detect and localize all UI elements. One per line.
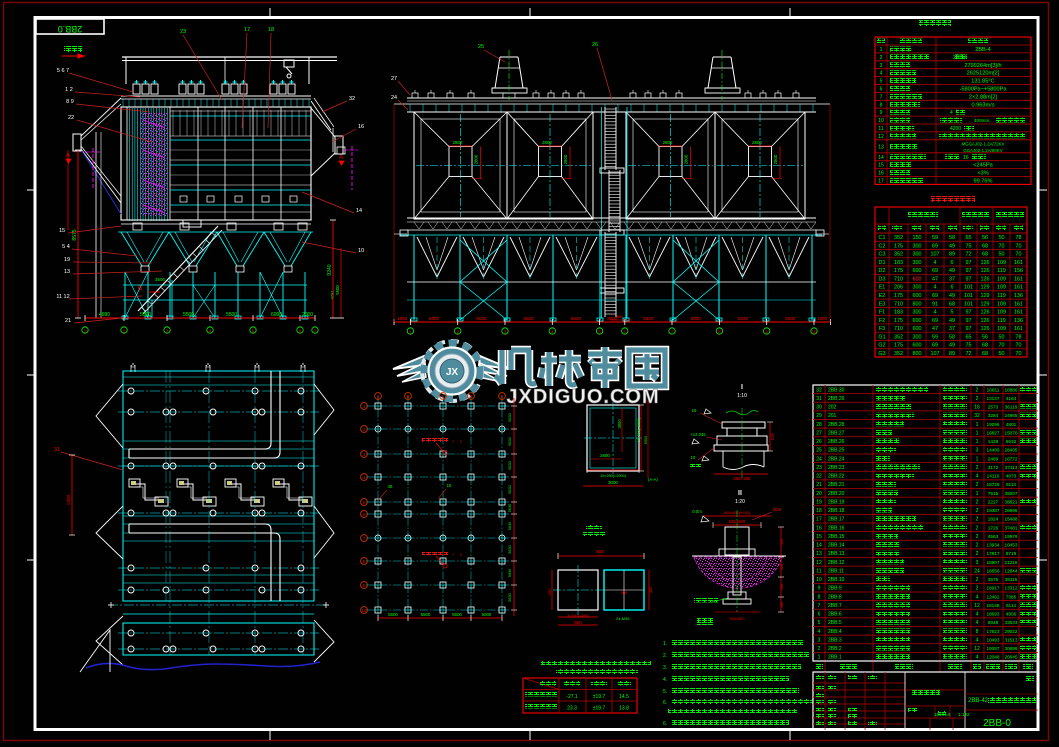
svg-text:6948: 6948 <box>988 620 999 625</box>
svg-text:255×255: 255×255 <box>733 476 751 481</box>
svg-text:2625120m[2]: 2625120m[2] <box>967 71 1000 77</box>
svg-text:400: 400 <box>621 590 628 595</box>
svg-text:70: 70 <box>999 343 1005 349</box>
svg-text:2800: 2800 <box>600 453 610 458</box>
svg-text:4: 4 <box>976 594 979 600</box>
svg-text:10: 10 <box>362 608 367 613</box>
svg-text:D2: D2 <box>879 268 886 274</box>
svg-text:550×550: 550×550 <box>730 617 745 621</box>
svg-text:4: 4 <box>880 71 883 77</box>
svg-text:4: 4 <box>976 474 979 480</box>
svg-text:8: 8 <box>880 102 883 108</box>
svg-text:2BB.13: 2BB.13 <box>828 551 845 557</box>
svg-text:12: 12 <box>974 646 980 652</box>
svg-text:3172: 3172 <box>988 465 999 470</box>
svg-text:1:10: 1:10 <box>737 393 747 399</box>
svg-text:32: 32 <box>974 413 980 419</box>
svg-text:1 2: 1 2 <box>65 87 73 93</box>
svg-text:17623: 17623 <box>986 629 999 634</box>
svg-text:400mm,: 400mm, <box>974 118 991 123</box>
svg-text:37: 37 <box>949 276 955 282</box>
svg-text:7: 7 <box>452 553 454 557</box>
svg-text:59: 59 <box>932 334 938 340</box>
svg-text:1.: 1. <box>663 641 667 647</box>
svg-text:136: 136 <box>1014 318 1023 324</box>
svg-text:5 6 7: 5 6 7 <box>57 68 69 74</box>
svg-text:4792: 4792 <box>330 290 335 300</box>
svg-text:15204.6: 15204.6 <box>934 712 951 717</box>
svg-text:2800: 2800 <box>453 140 463 145</box>
svg-text:2: 2 <box>880 55 883 61</box>
svg-text:150: 150 <box>780 584 784 590</box>
svg-text:68: 68 <box>982 343 988 349</box>
svg-text:300: 300 <box>913 243 922 249</box>
svg-text:5500: 5500 <box>335 285 340 295</box>
svg-text:E2: E2 <box>879 293 886 299</box>
svg-text:710: 710 <box>894 276 903 282</box>
svg-text:23: 23 <box>180 29 186 35</box>
svg-text:9240: 9240 <box>327 264 333 275</box>
svg-text:4906: 4906 <box>1006 612 1017 617</box>
svg-text:101: 101 <box>964 301 973 307</box>
svg-text:68: 68 <box>949 301 955 307</box>
svg-text:5.: 5. <box>663 689 667 695</box>
svg-text:99.76%: 99.76% <box>974 178 993 184</box>
svg-text:97: 97 <box>966 276 972 282</box>
svg-text:5630: 5630 <box>785 316 796 321</box>
svg-text:100: 100 <box>780 602 784 608</box>
svg-text:±19.7: ±19.7 <box>593 706 606 712</box>
svg-text:1824: 1824 <box>988 517 999 522</box>
svg-text:5630: 5630 <box>476 316 487 321</box>
svg-text:C: C <box>441 394 444 399</box>
svg-text:6: 6 <box>818 612 821 618</box>
svg-text:19296: 19296 <box>986 422 999 427</box>
svg-text:12048: 12048 <box>986 655 999 660</box>
svg-text:12402: 12402 <box>986 594 999 599</box>
svg-text:A: A <box>339 155 343 161</box>
svg-text:26: 26 <box>816 439 822 445</box>
svg-text:2800: 2800 <box>752 140 762 145</box>
svg-text:25: 25 <box>816 448 822 454</box>
svg-text:49: 49 <box>949 268 955 274</box>
svg-text:450: 450 <box>780 564 784 570</box>
svg-text:58: 58 <box>949 334 955 340</box>
svg-text:4: 4 <box>934 310 937 316</box>
svg-text:I: I <box>741 384 743 391</box>
svg-text:D1: D1 <box>879 260 886 266</box>
svg-text:5630: 5630 <box>691 316 702 321</box>
svg-text:2BB.1: 2BB.1 <box>828 655 842 661</box>
svg-text:100: 100 <box>780 539 784 545</box>
svg-text:2800: 2800 <box>542 140 552 145</box>
svg-text:49: 49 <box>949 243 955 249</box>
svg-text:15070: 15070 <box>1004 430 1017 435</box>
svg-text:97: 97 <box>966 310 972 316</box>
svg-text:2800: 2800 <box>563 154 568 164</box>
svg-text:1: 1 <box>976 422 979 428</box>
svg-text:70: 70 <box>999 243 1005 249</box>
svg-text:3576: 3576 <box>988 577 999 582</box>
svg-text:13: 13 <box>64 269 70 275</box>
svg-text:109: 109 <box>997 310 1006 316</box>
svg-text:14: 14 <box>816 543 822 549</box>
svg-text:2BB.3: 2BB.3 <box>828 637 842 643</box>
svg-text:18693: 18693 <box>986 612 999 617</box>
svg-text:175: 175 <box>894 268 903 274</box>
svg-text:10493: 10493 <box>986 637 999 642</box>
svg-text:(A-A): (A-A) <box>648 477 658 482</box>
svg-text:14409: 14409 <box>986 448 999 453</box>
svg-text:2BB.14: 2BB.14 <box>828 543 845 549</box>
svg-text:7: 7 <box>818 603 821 609</box>
svg-text:1: 1 <box>976 456 979 462</box>
svg-text:B: B <box>138 285 142 292</box>
svg-text:M36: M36 <box>773 507 782 512</box>
svg-text:16: 16 <box>447 483 452 488</box>
svg-text:70: 70 <box>1016 343 1022 349</box>
svg-text:F3: F3 <box>879 326 885 332</box>
svg-text:2: 2 <box>976 551 979 557</box>
svg-text:352: 352 <box>894 334 903 340</box>
svg-text:4801: 4801 <box>1006 422 1017 427</box>
svg-text:2799264m[3]/h: 2799264m[3]/h <box>964 63 1001 69</box>
svg-text:119: 119 <box>997 293 1006 299</box>
svg-text:16: 16 <box>974 405 980 411</box>
svg-text:24965: 24965 <box>1004 413 1017 418</box>
svg-text:4: 4 <box>976 612 979 618</box>
svg-text:14: 14 <box>878 155 884 161</box>
svg-text:2BB.28: 2BB.28 <box>828 422 845 428</box>
svg-text:10453: 10453 <box>1004 543 1017 548</box>
svg-text:±19.7: ±19.7 <box>593 694 606 700</box>
svg-text:50: 50 <box>999 334 1005 340</box>
svg-text:50: 50 <box>999 351 1005 357</box>
svg-text:161: 161 <box>1014 285 1023 291</box>
svg-text:47: 47 <box>932 276 938 282</box>
svg-text:800: 800 <box>617 314 624 319</box>
svg-text:3.: 3. <box>663 665 667 671</box>
svg-text:78: 78 <box>1016 334 1022 340</box>
svg-text:109: 109 <box>997 276 1006 282</box>
svg-text:3×160(=480): 3×160(=480) <box>567 614 589 618</box>
svg-text:300: 300 <box>913 310 922 316</box>
svg-text:300: 300 <box>913 260 922 266</box>
svg-text:97: 97 <box>966 260 972 266</box>
svg-text:11: 11 <box>816 568 821 574</box>
svg-text:39115: 39115 <box>1005 577 1018 582</box>
svg-text:24: 24 <box>391 95 397 101</box>
svg-text:A: A <box>377 394 380 399</box>
svg-text:1: 1 <box>880 47 883 53</box>
svg-text:G2: G2 <box>878 343 885 349</box>
svg-text:2×2.88m[2]: 2×2.88m[2] <box>969 94 998 100</box>
svg-text:75: 75 <box>966 243 972 249</box>
svg-text:69: 69 <box>932 268 938 274</box>
svg-text:175: 175 <box>894 293 903 299</box>
svg-text:5: 5 <box>880 79 883 85</box>
svg-text:<245Pa: <245Pa <box>973 163 993 169</box>
svg-text:1: 1 <box>976 430 979 436</box>
svg-text:126: 126 <box>981 326 990 332</box>
svg-text:119: 119 <box>997 268 1006 274</box>
svg-text:+12.045: +12.045 <box>690 432 706 437</box>
svg-text:126: 126 <box>981 260 990 266</box>
svg-text:2: 2 <box>976 517 979 523</box>
svg-text:2BB.10: 2BB.10 <box>828 577 845 583</box>
svg-text:2489: 2489 <box>988 456 999 461</box>
svg-text:10886: 10886 <box>1004 387 1017 392</box>
svg-text:78: 78 <box>1016 235 1022 241</box>
svg-text:4563: 4563 <box>988 534 999 539</box>
svg-text:7515: 7515 <box>988 491 999 496</box>
svg-text:126: 126 <box>981 310 990 316</box>
svg-text:13: 13 <box>816 551 822 557</box>
svg-text:2BB.9: 2BB.9 <box>828 586 842 592</box>
svg-text:C2: C2 <box>879 243 886 249</box>
svg-text:2573: 2573 <box>988 405 999 410</box>
svg-text:27: 27 <box>816 430 822 436</box>
svg-text:23.3: 23.3 <box>567 706 577 712</box>
svg-text:19: 19 <box>64 257 70 263</box>
svg-text:710: 710 <box>894 301 903 307</box>
svg-text:69: 69 <box>932 318 938 324</box>
svg-text:58: 58 <box>949 235 955 241</box>
svg-text:30699: 30699 <box>1004 646 1017 651</box>
svg-text:49: 49 <box>949 293 955 299</box>
svg-text:2: 2 <box>976 499 979 505</box>
svg-text:800: 800 <box>913 351 922 357</box>
svg-text:6000: 6000 <box>482 612 492 617</box>
svg-text:18728: 18728 <box>986 482 999 487</box>
svg-text:16: 16 <box>878 171 884 177</box>
svg-text:-27.1: -27.1 <box>566 694 578 700</box>
svg-text:2: 2 <box>976 586 979 592</box>
svg-text:126: 126 <box>981 276 990 282</box>
svg-text:2: 2 <box>976 534 979 540</box>
svg-text:65: 65 <box>966 235 972 241</box>
svg-text:4: 4 <box>976 655 979 661</box>
svg-text:161: 161 <box>1014 326 1023 332</box>
svg-text:10×300(=3000): 10×300(=3000) <box>637 418 641 443</box>
svg-text:101: 101 <box>964 293 973 299</box>
svg-text:3284: 3284 <box>988 413 999 418</box>
svg-text:8: 8 <box>818 594 821 600</box>
svg-text:5630: 5630 <box>429 316 440 321</box>
svg-text:2: 2 <box>976 396 979 402</box>
svg-text:2BB.0: 2BB.0 <box>58 24 83 34</box>
svg-text:5630: 5630 <box>643 316 654 321</box>
svg-text:5630: 5630 <box>508 593 512 601</box>
svg-text:13: 13 <box>878 144 884 150</box>
svg-text:161: 161 <box>1014 276 1023 282</box>
svg-text:150: 150 <box>913 235 922 241</box>
svg-text:39: 39 <box>388 484 393 489</box>
svg-text:E: E <box>501 394 504 399</box>
svg-text:G1: G1 <box>878 334 885 340</box>
svg-text:5114: 5114 <box>1006 603 1016 608</box>
svg-text:2BB.4: 2BB.4 <box>828 629 842 635</box>
svg-text:70: 70 <box>1016 351 1022 357</box>
svg-text:75: 75 <box>966 343 972 349</box>
svg-text:24: 24 <box>816 456 822 462</box>
svg-text:2BB.12: 2BB.12 <box>828 560 845 566</box>
svg-text:GGAJ02-1.2A/80KV: GGAJ02-1.2A/80KV <box>963 148 1002 153</box>
svg-text:109: 109 <box>997 301 1006 307</box>
svg-text:3000: 3000 <box>608 480 618 485</box>
svg-text:1428: 1428 <box>988 439 999 444</box>
svg-text:2: 2 <box>976 543 979 549</box>
svg-text:175: 175 <box>894 318 903 324</box>
svg-text:26: 26 <box>592 42 598 48</box>
svg-text:710: 710 <box>894 326 903 332</box>
svg-text:69: 69 <box>932 293 938 299</box>
svg-text:15: 15 <box>59 228 65 234</box>
svg-text:12: 12 <box>974 603 980 609</box>
svg-text:1726: 1726 <box>988 525 999 530</box>
svg-text:9: 9 <box>818 586 821 592</box>
svg-text:20645: 20645 <box>1004 655 1017 660</box>
svg-text:6.: 6. <box>663 721 667 727</box>
svg-text:2800: 2800 <box>773 154 778 164</box>
svg-text:12844: 12844 <box>1004 568 1017 573</box>
svg-text:10: 10 <box>811 329 817 334</box>
svg-text:2BB.11: 2BB.11 <box>828 568 844 574</box>
svg-text:1:192: 1:192 <box>958 712 970 717</box>
svg-text:1: 1 <box>976 491 979 497</box>
svg-text:12: 12 <box>878 134 884 140</box>
svg-text:600: 600 <box>913 318 922 324</box>
svg-text:2BB.22: 2BB.22 <box>828 474 845 480</box>
svg-text:19979: 19979 <box>1004 534 1017 539</box>
svg-text:37481: 37481 <box>1004 525 1017 530</box>
svg-text:18: 18 <box>268 27 274 33</box>
svg-text:15: 15 <box>816 534 822 540</box>
svg-text:14: 14 <box>356 208 362 214</box>
svg-text:F1: F1 <box>879 310 885 316</box>
svg-text:10: 10 <box>691 455 696 460</box>
svg-text:300: 300 <box>913 285 922 291</box>
svg-text:600: 600 <box>913 326 922 332</box>
svg-text:28405: 28405 <box>1004 448 1017 453</box>
svg-text:69: 69 <box>932 243 938 249</box>
svg-text:70: 70 <box>1016 243 1022 249</box>
svg-text:18: 18 <box>816 508 822 514</box>
svg-text:33533: 33533 <box>1004 620 1017 625</box>
svg-text:59: 59 <box>932 235 938 241</box>
svg-text:206: 206 <box>894 285 903 291</box>
svg-text:109: 109 <box>997 285 1006 291</box>
svg-text:5500: 5500 <box>452 612 462 617</box>
svg-text:201: 201 <box>828 413 837 419</box>
svg-text:136: 136 <box>1014 293 1023 299</box>
svg-text:8: 8 <box>976 629 979 635</box>
svg-text:13312: 13312 <box>1004 586 1017 591</box>
svg-text:10: 10 <box>816 577 822 583</box>
svg-text:5: 5 <box>818 620 821 626</box>
svg-text:5630: 5630 <box>508 504 512 512</box>
svg-text:MGGAJ02-1.2A/72KV: MGGAJ02-1.2A/72KV <box>962 141 1005 146</box>
svg-text:175: 175 <box>894 343 903 349</box>
svg-text:5630: 5630 <box>524 316 535 321</box>
svg-text:20: 20 <box>816 491 822 497</box>
svg-text:300: 300 <box>913 334 922 340</box>
svg-text:32: 32 <box>816 387 822 393</box>
svg-text:5500: 5500 <box>183 312 194 318</box>
svg-text:0.0m: 0.0m <box>692 509 702 514</box>
svg-text:E3: E3 <box>879 301 886 307</box>
svg-text:6.: 6. <box>663 700 667 706</box>
svg-text:49: 49 <box>949 343 955 349</box>
svg-text:17: 17 <box>878 178 884 184</box>
svg-text:4990: 4990 <box>99 312 110 318</box>
svg-text:2: 2 <box>976 577 979 583</box>
svg-text:11 12: 11 12 <box>56 294 69 300</box>
svg-text:2BB.23: 2BB.23 <box>828 465 845 471</box>
svg-text:5630: 5630 <box>508 522 512 530</box>
svg-text:156: 156 <box>1014 268 1023 274</box>
svg-text:2BB.18: 2BB.18 <box>828 508 845 514</box>
svg-text:29022: 29022 <box>1004 629 1017 634</box>
svg-text:5630: 5630 <box>738 316 749 321</box>
svg-text:4: 4 <box>934 285 937 291</box>
svg-text:4: 4 <box>950 110 953 116</box>
svg-text:11: 11 <box>878 126 883 132</box>
svg-text:2BB.15: 2BB.15 <box>828 534 845 540</box>
svg-text:2BB.2: 2BB.2 <box>828 646 842 652</box>
svg-text:2: 2 <box>460 440 462 444</box>
svg-text:2BB.24: 2BB.24 <box>828 456 845 462</box>
svg-text:56: 56 <box>982 334 988 340</box>
svg-text:107: 107 <box>931 252 940 258</box>
svg-text:2BB.5: 2BB.5 <box>828 620 842 626</box>
svg-text:3800: 3800 <box>617 419 622 429</box>
svg-text:2BB-42: 2BB-42 <box>968 698 989 704</box>
svg-text:2BB.17: 2BB.17 <box>828 517 845 523</box>
svg-text:560: 560 <box>574 620 582 625</box>
svg-text:31513: 31513 <box>1004 637 1017 642</box>
svg-text:2BB.8: 2BB.8 <box>828 594 842 600</box>
svg-text:56: 56 <box>982 235 988 241</box>
svg-text:107: 107 <box>931 351 940 357</box>
svg-text:97: 97 <box>966 318 972 324</box>
svg-text:28: 28 <box>816 422 822 428</box>
svg-text:2800: 2800 <box>663 140 673 145</box>
svg-text:6: 6 <box>951 285 954 291</box>
svg-text:97: 97 <box>966 326 972 332</box>
svg-text:37: 37 <box>949 326 955 332</box>
svg-text:17: 17 <box>816 517 822 523</box>
svg-text:3: 3 <box>880 63 883 69</box>
svg-text:2: 2 <box>976 482 979 488</box>
svg-text:126: 126 <box>981 318 990 324</box>
svg-text:10811: 10811 <box>987 387 1000 392</box>
svg-text:50: 50 <box>999 252 1005 258</box>
svg-text:7: 7 <box>452 440 454 444</box>
svg-text:352: 352 <box>894 351 903 357</box>
svg-text:13934: 13934 <box>986 543 999 548</box>
svg-text:C1: C1 <box>879 235 886 241</box>
svg-text:4164: 4164 <box>1006 396 1017 401</box>
svg-text:4873: 4873 <box>1006 474 1017 479</box>
svg-text:5630: 5630 <box>508 485 512 493</box>
svg-text:183: 183 <box>894 310 903 316</box>
svg-text:300: 300 <box>913 252 922 258</box>
svg-text:2BB-4: 2BB-4 <box>975 47 991 53</box>
svg-text:4: 4 <box>818 629 821 635</box>
svg-text:68: 68 <box>982 252 988 258</box>
svg-text:16827: 16827 <box>986 430 999 435</box>
